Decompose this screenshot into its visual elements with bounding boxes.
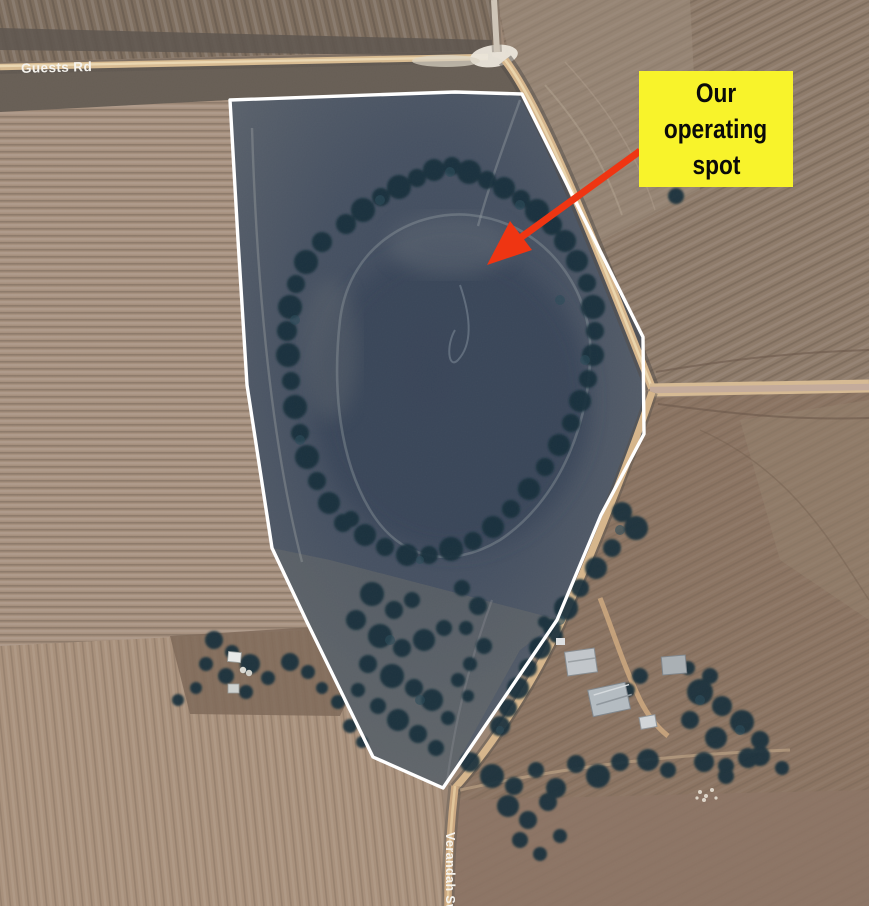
road-label-verandah-sw: Verandah Sw	[443, 832, 457, 906]
annotation-text-line: Our	[696, 75, 736, 111]
annotation-text-line: operating	[664, 111, 767, 147]
map-screenshot: Guests Rd Verandah Sw Our operating spot	[0, 0, 869, 906]
annotation-text-line: spot	[692, 147, 740, 183]
annotation-callout[interactable]: Our operating spot	[639, 71, 793, 187]
road-label-guests-rd: Guests Rd	[21, 59, 92, 76]
